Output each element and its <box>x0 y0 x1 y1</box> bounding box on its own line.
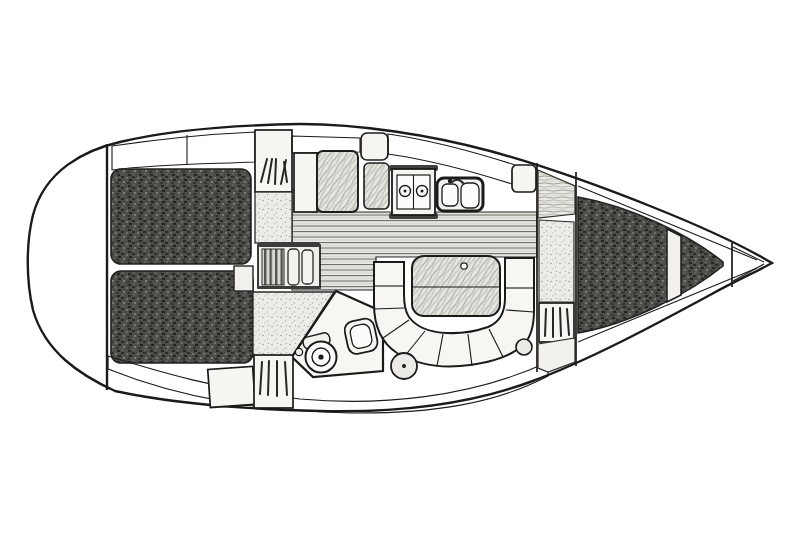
steps-hatch-cap <box>258 242 320 247</box>
step-tread-2 <box>302 250 313 284</box>
stool-small <box>516 339 532 355</box>
companionway-floor-stipple <box>255 192 292 243</box>
faucet-base <box>448 179 452 183</box>
aft-port-locker <box>208 366 256 407</box>
forward-corridor <box>537 163 576 372</box>
toilet-pump-knob <box>295 348 302 355</box>
burner-left-center <box>404 190 407 193</box>
galley-locker <box>512 165 536 192</box>
deck-hatch-box <box>361 133 388 160</box>
toilet-drain <box>318 354 323 359</box>
sink-basin-right <box>461 183 479 208</box>
aft-berth-access-notch <box>234 266 253 291</box>
sink-basin-left <box>442 184 458 206</box>
steps-treads <box>262 249 284 285</box>
aft-berth-lower <box>111 271 253 363</box>
aft-berth-upper <box>111 169 251 264</box>
steps-base-cap <box>258 286 320 289</box>
table-cup-holder <box>461 263 467 269</box>
saloon-table <box>412 256 500 316</box>
stove <box>389 165 438 219</box>
chart-table <box>317 151 358 212</box>
boat-floorplan-image <box>0 0 800 533</box>
nav-seat <box>294 153 317 212</box>
step-tread-1 <box>288 249 299 285</box>
aft-cabin <box>107 132 255 390</box>
floorplan-svg <box>0 0 800 533</box>
fwd-floor-stipple <box>539 220 574 302</box>
head-washbasin <box>343 317 379 356</box>
v-berth-bulkhead-band <box>667 229 681 302</box>
counter-panel <box>364 163 389 209</box>
stool-large-center <box>402 364 406 368</box>
double-sink <box>437 178 483 211</box>
burner-right-center <box>421 190 424 193</box>
